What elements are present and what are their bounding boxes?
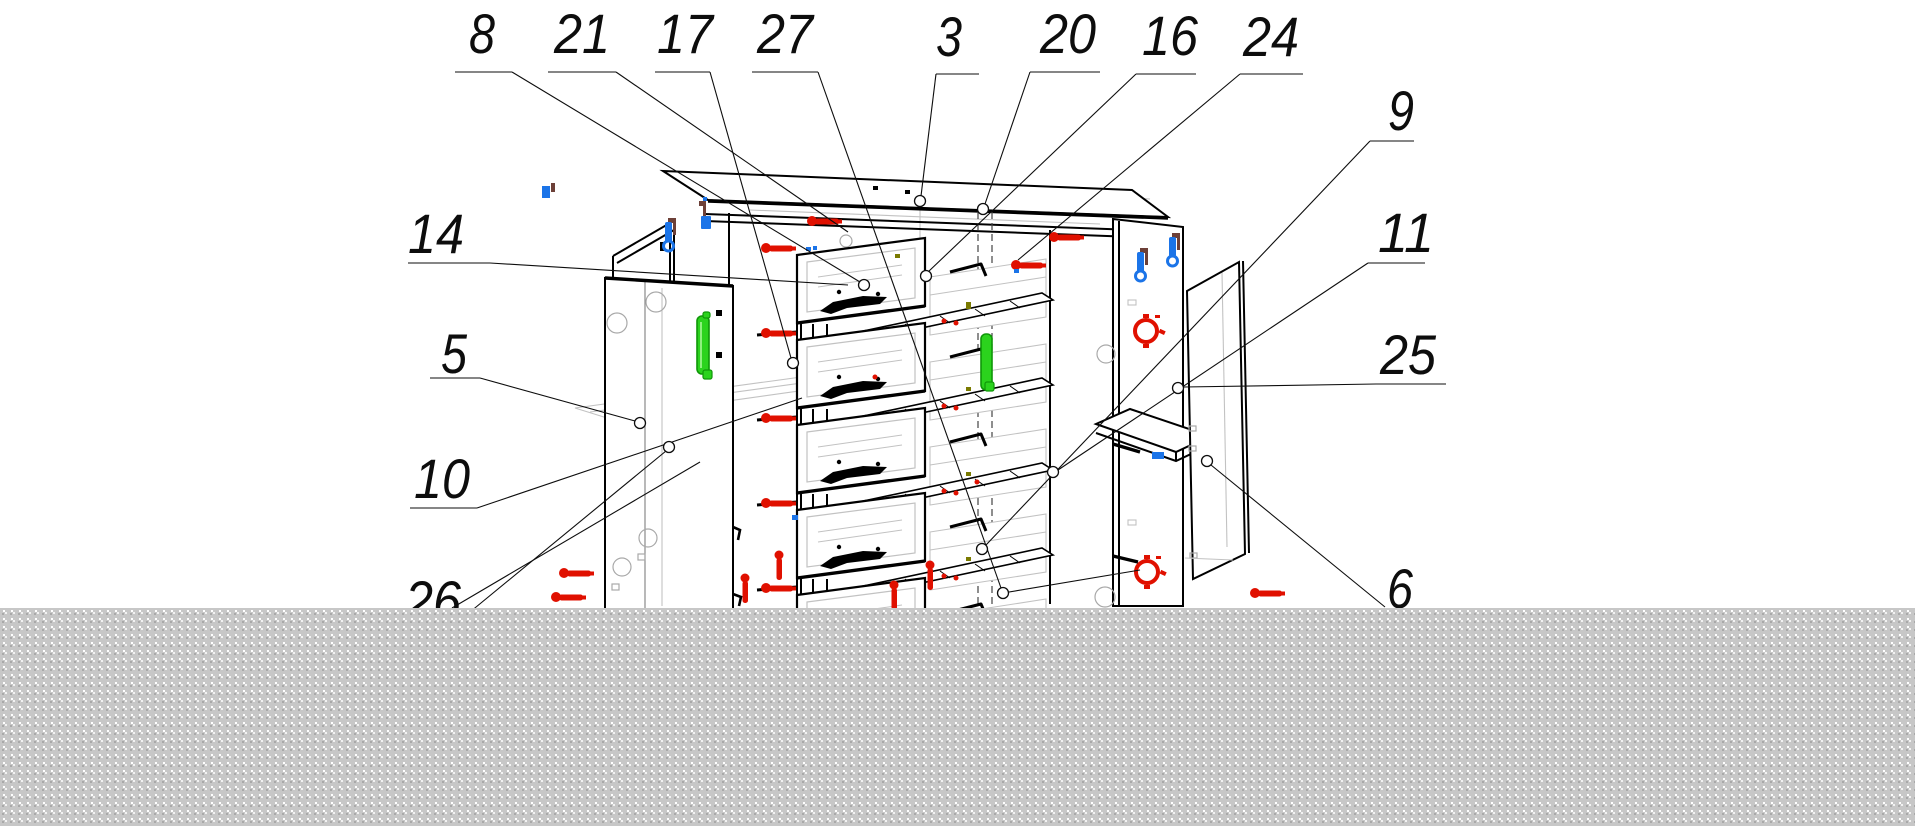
callout-label: 20: [1039, 2, 1096, 65]
leader-endpoint: [635, 418, 646, 429]
callout-label: 8: [469, 2, 495, 65]
diagram-page: 821172732016249112561451026: [0, 0, 1915, 826]
leader-endpoint: [1173, 383, 1184, 394]
leader-endpoint: [978, 204, 989, 215]
leader-endpoint: [664, 442, 675, 453]
left-corner-assembly: [542, 183, 711, 286]
leader-endpoint: [1048, 467, 1059, 478]
callout-label: 27: [756, 2, 815, 65]
callout-label: 5: [441, 322, 468, 385]
callout-label: 3: [936, 5, 962, 68]
leader-line: [921, 74, 936, 196]
callout-3: 3: [915, 5, 980, 207]
hinge-clip-icon: [542, 186, 550, 198]
callout-14: 14: [408, 202, 848, 285]
leader-line: [928, 74, 1136, 272]
callout-label: 11: [1378, 201, 1434, 264]
callout-label: 25: [1379, 323, 1437, 386]
callout-20: 20: [978, 2, 1101, 215]
cabinet-exploded-view: [452, 171, 1285, 683]
right-door: [1185, 261, 1249, 579]
callout-label: 10: [414, 447, 470, 510]
door-handle-icon: [697, 312, 712, 379]
leader-endpoint: [977, 544, 988, 555]
callout-label: 14: [408, 202, 464, 265]
leader-endpoint: [1202, 456, 1213, 467]
callout-label: 9: [1388, 79, 1414, 142]
leader-endpoint: [921, 271, 932, 282]
leader-line: [616, 72, 848, 232]
callout-label: 17: [657, 2, 715, 65]
callout-label: 16: [1142, 4, 1199, 67]
leader-endpoint: [788, 358, 799, 369]
callout-label: 21: [553, 2, 610, 65]
leader-endpoint: [998, 588, 1009, 599]
leader-endpoint: [915, 196, 926, 207]
callout-label: 24: [1242, 5, 1299, 68]
assembly-drawing-svg: 821172732016249112561451026: [0, 0, 1915, 826]
masked-region: [0, 608, 1915, 826]
drawer-handle-exploded: [981, 334, 994, 391]
leader-endpoint: [859, 280, 870, 291]
